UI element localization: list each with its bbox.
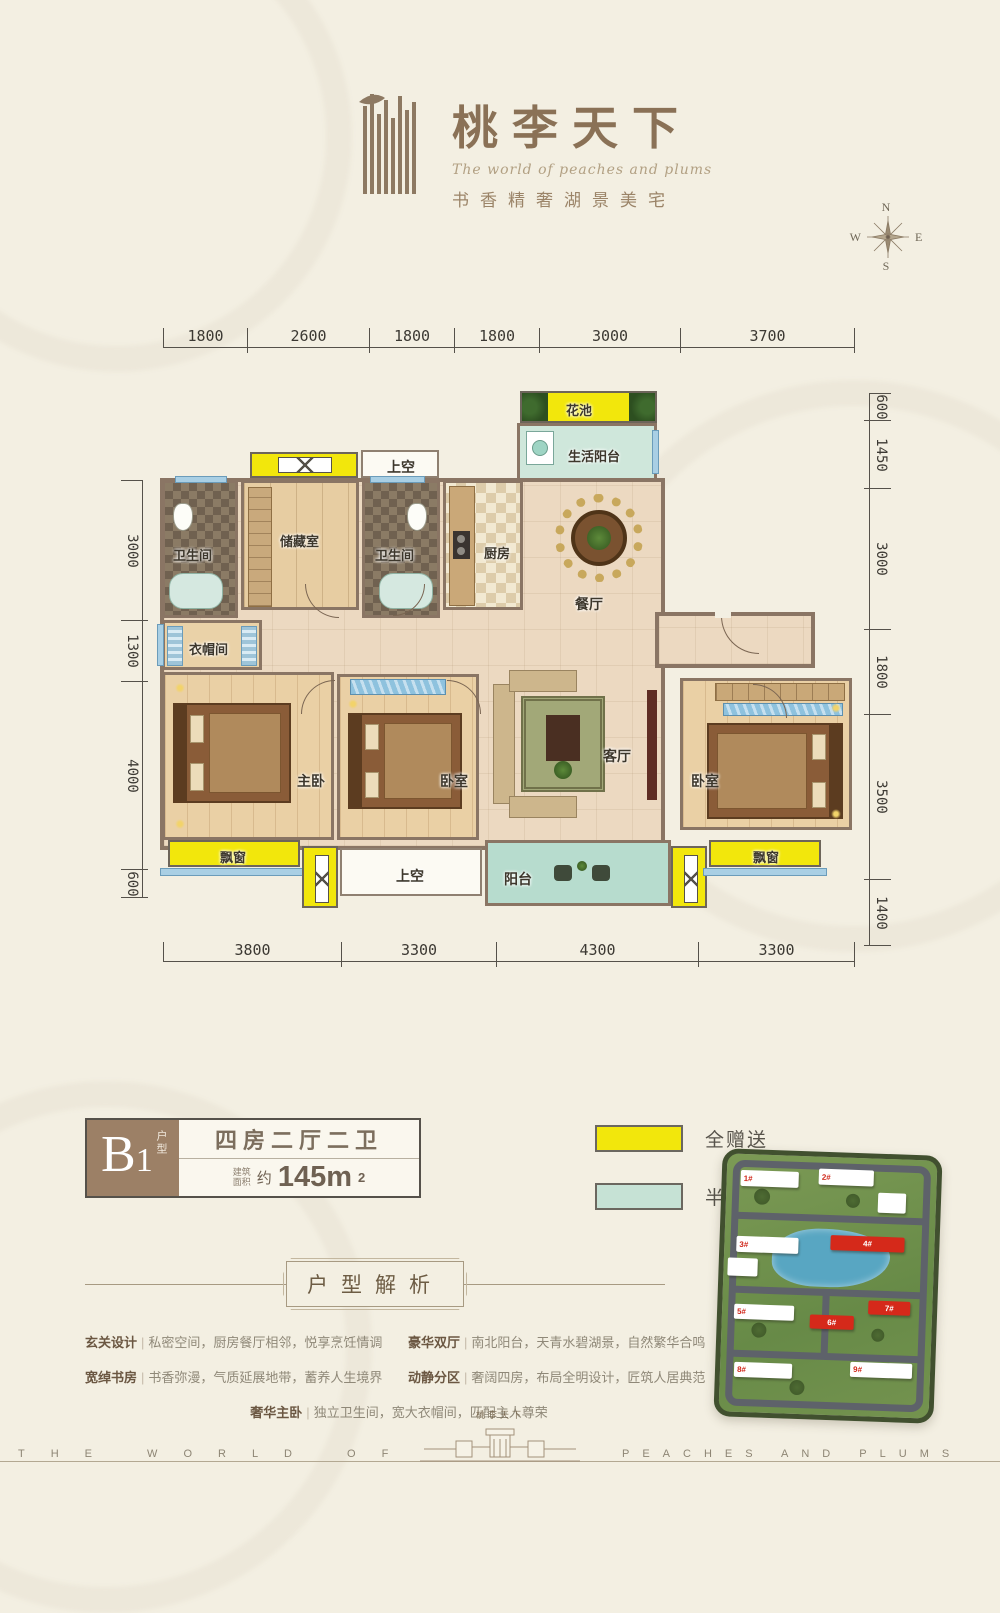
gifted-box-top (250, 452, 358, 478)
compass-north-label: N (848, 200, 924, 215)
hatch-icon (315, 855, 329, 903)
analysis-title: 户型解析 (286, 1261, 464, 1307)
brand-title-text: 桃李天下 (452, 92, 712, 158)
dim-value: 1800 (455, 327, 539, 345)
dim-value: 4300 (497, 941, 698, 959)
area-approx: 约 (257, 1167, 272, 1188)
divider-line (455, 1284, 665, 1285)
building-label: 7# (885, 1303, 894, 1312)
analysis-separator: | (464, 1370, 467, 1385)
room-bath-1: 卫生间 (162, 480, 238, 618)
brand-title: 桃李天下 The world of peaches and plums 书香精奢… (452, 92, 712, 211)
window-icon (652, 430, 659, 474)
footer-right-text: PEACHES AND PLUMS (622, 1448, 962, 1460)
room-label-balcony: 阳台 (504, 869, 532, 889)
dim-value: 600 (124, 871, 140, 896)
analysis-header: 户型解析 (85, 1262, 665, 1306)
unit-number: 1 (136, 1142, 153, 1179)
room-label-cloakroom: 衣帽间 (189, 639, 228, 658)
brand-subtitle-en: The world of peaches and plums (452, 162, 712, 178)
analysis-item-text: 私密空间，厨房餐厅相邻，悦享烹饪情调 (148, 1335, 382, 1350)
compass: N W E S (848, 200, 924, 296)
building-label: 6# (827, 1317, 836, 1326)
window-icon (350, 679, 446, 695)
room-void-bottom: 上空 (340, 848, 482, 896)
toilet-icon (173, 503, 193, 531)
analysis-separator: | (464, 1335, 467, 1350)
dimension-chain-bottom: 3800 3300 4300 3300 (163, 942, 855, 962)
unit-suffix: 户型 (153, 1130, 169, 1156)
building-1: 1# (740, 1170, 799, 1188)
unit-badge: B1 户型 (87, 1120, 179, 1196)
building-annex (878, 1193, 907, 1214)
room-label-void-top: 上空 (387, 457, 415, 477)
dim-value: 3000 (540, 327, 680, 345)
building-label: 1# (744, 1173, 753, 1182)
building-8: 8# (734, 1362, 792, 1379)
footer-gate-title: 桃李天下 (420, 1408, 580, 1421)
bed-icon (173, 703, 291, 803)
window-icon (175, 476, 227, 483)
building-4: 4# (830, 1235, 904, 1253)
room-label-bedroom-3: 卧室 (691, 771, 719, 791)
building-label: 8# (737, 1365, 746, 1374)
area-label-1: 建筑 (233, 1167, 251, 1177)
analysis-separator: | (306, 1405, 309, 1420)
analysis-item: 豪华双厅|南北阳台，天青水碧湖景，自然繁华合鸣 (408, 1332, 713, 1351)
hatch-icon (278, 457, 332, 473)
room-balcony: 阳台 (485, 840, 671, 906)
rug-icon (521, 696, 605, 792)
room-label-life-balcony: 生活阳台 (568, 446, 620, 465)
entry-door-opening (715, 610, 731, 618)
building-label: 4# (863, 1239, 872, 1248)
analysis-item: 玄关设计|私密空间，厨房餐厅相邻，悦享烹饪情调 (85, 1332, 390, 1351)
kitchen-counter-icon (449, 486, 475, 606)
building-5: 5# (734, 1304, 794, 1321)
divider-line (85, 1284, 295, 1285)
dim-value: 1300 (124, 634, 140, 668)
room-label-living: 客厅 (603, 746, 631, 766)
bay-window-left: 飘窗 (168, 840, 300, 867)
shelving-icon (248, 487, 272, 607)
analysis-item-label: 豪华双厅 (408, 1335, 460, 1350)
unit-area: 建筑 面积 约 145m2 (179, 1159, 419, 1197)
dim-value: 1800 (873, 655, 889, 689)
legend-swatch-half-gift (595, 1183, 683, 1210)
room-life-balcony: 生活阳台 (517, 423, 657, 481)
building-9: 9# (850, 1362, 912, 1379)
building-label: 2# (822, 1172, 831, 1181)
room-cloakroom: 衣帽间 (162, 620, 262, 670)
building-7: 7# (868, 1300, 910, 1315)
room-label-dining: 餐厅 (575, 594, 603, 614)
dimension-chain-left: 3000 1300 4000 600 (121, 480, 143, 898)
floor-plan: 花池 生活阳台 上空 卫生间 储藏室 卫生间 (155, 388, 865, 918)
room-label-bath-2: 卫生间 (375, 545, 414, 564)
dim-value: 1800 (164, 327, 247, 345)
gifted-strip-right (671, 846, 707, 908)
area-sup: 2 (358, 1170, 365, 1185)
toilet-icon (407, 503, 427, 531)
room-label-bay-right: 飘窗 (753, 847, 779, 866)
bed-icon (707, 723, 843, 819)
plant-icon (577, 861, 587, 871)
building-label: 9# (853, 1365, 862, 1374)
dim-value: 1450 (873, 438, 889, 472)
legend-swatch-full-gift (595, 1125, 683, 1152)
dimension-chain-top: 1800 2600 1800 1800 3000 3700 (163, 328, 855, 348)
closet-rack-icon (241, 626, 257, 666)
footer-gate: 桃李天下 (420, 1408, 580, 1476)
tv-cabinet-icon (647, 690, 657, 800)
compass-west-label: W (850, 230, 861, 245)
compass-south-label: S (848, 259, 924, 274)
unit-card: B1 户型 四房二厅二卫 建筑 面积 约 145m2 (85, 1118, 421, 1198)
window-icon (157, 624, 164, 666)
lounge-chair-icon (592, 865, 610, 881)
footer-left-text: THE WORLD OF (18, 1448, 414, 1460)
dim-value: 3000 (873, 542, 889, 576)
plant-decor-icon (522, 393, 548, 421)
stove-icon (453, 531, 470, 559)
dim-value: 2600 (248, 327, 369, 345)
analysis-item: 奢华主卧|独立卫生间，宽大衣帽间，匹配主人尊荣 (85, 1402, 713, 1421)
analysis-item: 宽绰书房|书香弥漫，气质延展地带，蓄养人生境界 (85, 1367, 390, 1386)
brand-logo-mark-icon (355, 88, 435, 196)
room-void-top: 上空 (361, 450, 439, 478)
gifted-strip-left (302, 846, 338, 908)
dim-value: 4000 (124, 759, 140, 793)
gate-illustration-icon (420, 1421, 580, 1471)
analysis-item-label: 动静分区 (408, 1370, 460, 1385)
room-label-flower-bed: 花池 (566, 400, 592, 419)
window-icon (370, 476, 425, 483)
room-label-bedroom-2: 卧室 (440, 771, 468, 791)
window-icon (703, 868, 827, 876)
analysis-item-text: 书香弥漫，气质延展地带，蓄养人生境界 (148, 1370, 382, 1385)
analysis-list: 玄关设计|私密空间，厨房餐厅相邻，悦享烹饪情调 豪华双厅|南北阳台，天青水碧湖景… (85, 1332, 713, 1421)
hatch-icon (684, 855, 698, 903)
dim-value: 1400 (873, 896, 889, 930)
coffee-table-icon (546, 715, 580, 761)
bathtub-icon (169, 573, 223, 609)
building-label: 3# (739, 1239, 748, 1248)
dim-value: 3500 (873, 780, 889, 814)
sofa-icon (509, 670, 577, 692)
building-label: 5# (737, 1307, 746, 1316)
analysis-item-label: 宽绰书房 (85, 1370, 137, 1385)
bed-icon (348, 713, 462, 809)
analysis-item: 动静分区|奢阔四房，布局全明设计，匠筑人居典范 (408, 1367, 713, 1386)
dim-value: 3000 (124, 534, 140, 568)
room-label-bath-1: 卫生间 (173, 545, 212, 564)
building-clubhouse (727, 1257, 758, 1276)
analysis-item-text: 奢阔四房，布局全明设计，匠筑人居典范 (471, 1370, 705, 1385)
brand-tagline: 书香精奢湖景美宅 (452, 186, 712, 211)
dimension-chain-right: 600 1450 3000 1800 3500 1400 (869, 393, 891, 946)
dim-value: 3800 (164, 941, 341, 959)
plant-icon (554, 761, 572, 779)
dining-table-icon (571, 510, 627, 566)
dim-value: 3300 (342, 941, 496, 959)
dim-value: 3700 (681, 327, 854, 345)
dim-value: 600 (873, 394, 889, 419)
room-kitchen: 厨房 (443, 480, 523, 610)
bay-window-right: 飘窗 (709, 840, 821, 867)
area-label-2: 面积 (233, 1177, 251, 1187)
analysis-item-label: 奢华主卧 (250, 1405, 302, 1420)
unit-layout: 四房二厅二卫 (179, 1120, 419, 1159)
unit-letter: B (101, 1126, 136, 1183)
room-label-kitchen: 厨房 (484, 543, 510, 562)
room-label-void-bottom: 上空 (396, 866, 424, 886)
room-label-storage: 储藏室 (280, 531, 319, 550)
room-label-bay-left: 飘窗 (220, 847, 246, 866)
analysis-separator: | (141, 1335, 144, 1350)
closet-rack-icon (167, 626, 183, 666)
analysis-item-label: 玄关设计 (85, 1335, 137, 1350)
sofa-icon (509, 796, 577, 818)
building-3: 3# (736, 1236, 799, 1254)
room-dining: 餐厅 (523, 480, 663, 620)
site-map: 1# 2# 3# 4# 5# 6# 7# 8# 9# (713, 1148, 942, 1424)
window-icon (160, 868, 308, 876)
room-storage: 储藏室 (241, 480, 359, 610)
room-living: 客厅 (483, 660, 669, 836)
compass-rose-icon (866, 215, 910, 259)
room-label-master: 主卧 (297, 771, 325, 791)
area-value: 145m (278, 1161, 352, 1194)
building-2: 2# (819, 1169, 875, 1187)
room-flower-bed: 花池 (520, 391, 657, 423)
analysis-separator: | (141, 1370, 144, 1385)
building-6: 6# (810, 1314, 854, 1330)
plant-decor-icon (629, 393, 655, 421)
analysis-item-text: 南北阳台，天青水碧湖景，自然繁华合鸣 (471, 1335, 705, 1350)
dim-value: 3300 (699, 941, 854, 959)
compass-east-label: E (915, 230, 922, 245)
dim-value: 1800 (370, 327, 454, 345)
washing-machine-icon (526, 431, 554, 465)
sofa-icon (493, 684, 515, 804)
background-flourish (0, 0, 352, 372)
lounge-chair-icon (554, 865, 572, 881)
